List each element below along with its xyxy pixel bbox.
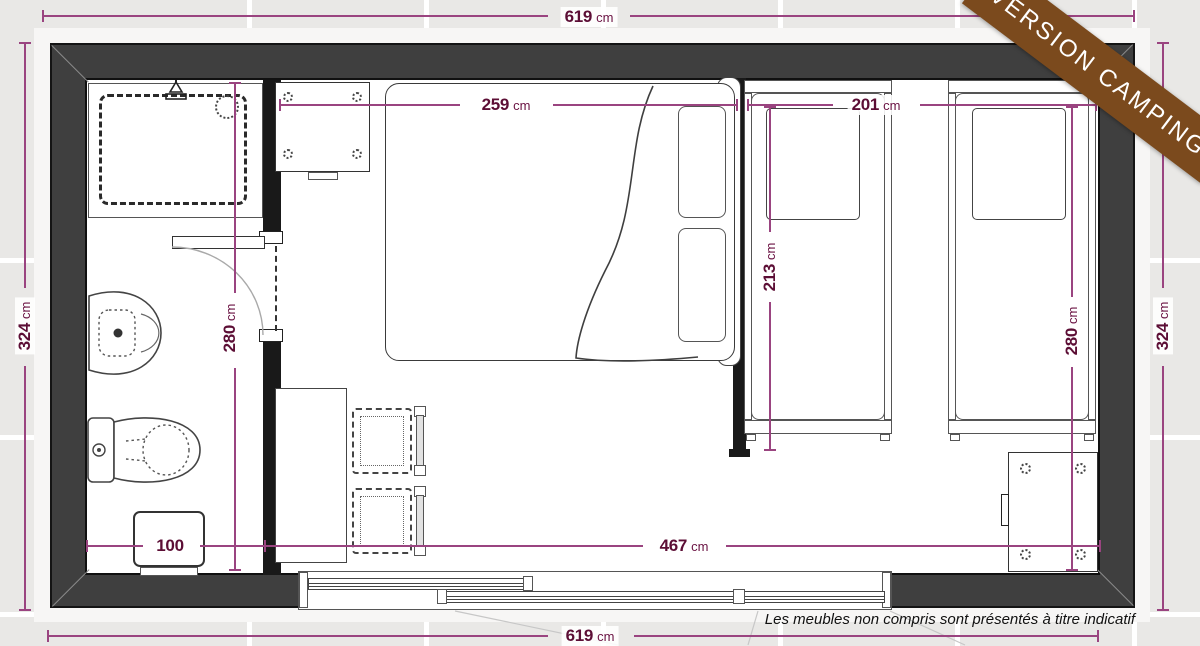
dim-line — [634, 635, 1098, 637]
bay-door-panel-right — [445, 591, 885, 603]
wardrobe-knob-icon — [352, 92, 362, 102]
bedroom-partition-cap — [729, 449, 750, 457]
doorway-opening-dashed — [275, 246, 277, 331]
chair — [352, 486, 428, 558]
sliding-bay-door — [298, 571, 892, 610]
dim-label-bedroom-depth: 280cm — [1062, 303, 1082, 360]
bay-door-panel-left — [308, 578, 530, 590]
nightstand-knob-icon — [1020, 549, 1031, 560]
dim-line — [87, 545, 143, 547]
dim-line — [769, 107, 771, 232]
dim-label-bottom-width: 619cm — [562, 626, 619, 646]
dim-tick — [19, 42, 31, 44]
dim-tick — [264, 540, 266, 552]
dim-label-twin-length: 213cm — [760, 239, 780, 296]
bed-foot — [950, 434, 960, 441]
dim-tick — [1099, 540, 1101, 552]
dim-line — [48, 635, 548, 637]
dim-line — [726, 545, 1100, 547]
bathroom-door-swing-arc — [172, 247, 266, 341]
dim-label-bathroom-depth: 280cm — [220, 300, 240, 357]
chair-cushion — [360, 496, 404, 546]
chair-back-cap — [414, 465, 426, 476]
dim-label-double-bed: 259cm — [478, 95, 535, 115]
bed-footboard — [948, 420, 1096, 434]
dim-tick — [1066, 106, 1078, 108]
dim-label-top-width: 619cm — [561, 7, 618, 27]
dim-tick — [229, 569, 241, 571]
dim-line — [234, 83, 236, 293]
nightstand-knob-icon — [1075, 549, 1086, 560]
bay-door-track-junction — [733, 589, 745, 604]
chair-cushion — [360, 416, 404, 466]
toilet — [86, 410, 208, 492]
bay-door-handle — [523, 576, 533, 591]
dim-tick — [736, 99, 738, 111]
bed-foot — [880, 434, 890, 441]
dim-line — [24, 43, 26, 288]
table — [275, 388, 347, 563]
dim-line — [1162, 43, 1164, 288]
dim-line — [1071, 367, 1073, 570]
dim-line — [1071, 107, 1073, 297]
dim-tick — [1157, 42, 1169, 44]
chair-back — [416, 415, 424, 467]
bed-rail — [1088, 93, 1096, 420]
bed-foot — [1084, 434, 1094, 441]
dim-label-bathroom-width: 100 — [152, 536, 191, 556]
bay-door-handle — [437, 589, 447, 604]
wardrobe-knob-icon — [283, 149, 293, 159]
dim-label-twin-span: 201cm — [848, 95, 905, 115]
dim-tick — [86, 540, 88, 552]
dim-tick — [1097, 630, 1099, 642]
dim-line — [24, 366, 26, 610]
dim-line — [769, 302, 771, 450]
bay-door-jamb — [299, 572, 308, 608]
washbasin — [85, 288, 165, 380]
dim-tick — [1157, 609, 1169, 611]
dim-label-left-height: 324cm — [15, 298, 35, 355]
shower-head-icon — [157, 80, 195, 104]
wardrobe-knob-icon — [352, 149, 362, 159]
dim-line — [1162, 366, 1164, 610]
bed-rail — [884, 93, 892, 420]
dim-tick — [279, 99, 281, 111]
chair — [352, 406, 428, 478]
footnote: Les meubles non compris sont présentés à… — [700, 611, 1135, 628]
wardrobe-knob-icon — [283, 92, 293, 102]
floor-plan-page: { "banner": { "label": "VERSION CAMPING"… — [0, 0, 1200, 646]
bed-pillow — [766, 108, 860, 220]
wardrobe — [275, 82, 370, 172]
dim-tick — [1066, 569, 1078, 571]
double-bed-duvet-fold — [550, 76, 740, 366]
bed-headboard — [744, 80, 892, 93]
bed-footboard — [744, 420, 892, 434]
chair-back — [416, 495, 424, 547]
nightstand-knob-icon — [1075, 463, 1086, 474]
single-bed-right — [948, 80, 1096, 450]
dim-tick — [764, 106, 776, 108]
dim-label-right-height: 324cm — [1153, 298, 1173, 355]
wardrobe-handle — [308, 172, 338, 180]
dim-line — [280, 104, 460, 106]
dim-tick — [229, 82, 241, 84]
bathroom-cabinet-base — [140, 567, 198, 576]
dim-line — [553, 104, 737, 106]
dim-line — [200, 545, 264, 547]
bed-foot — [746, 434, 756, 441]
bed-pillow — [972, 108, 1066, 220]
nightstand-knob-icon — [1020, 463, 1031, 474]
dim-tick — [42, 10, 44, 22]
nightstand-handle — [1001, 494, 1009, 526]
dim-line — [265, 545, 643, 547]
dim-line — [748, 104, 833, 106]
nightstand — [1008, 452, 1098, 572]
dim-tick — [1133, 10, 1135, 22]
dim-tick — [747, 99, 749, 111]
dim-tick — [764, 449, 776, 451]
dim-line — [234, 368, 236, 570]
dim-tick — [19, 609, 31, 611]
dim-label-living-width: 467cm — [656, 536, 713, 556]
dim-line — [43, 15, 548, 17]
dim-tick — [47, 630, 49, 642]
